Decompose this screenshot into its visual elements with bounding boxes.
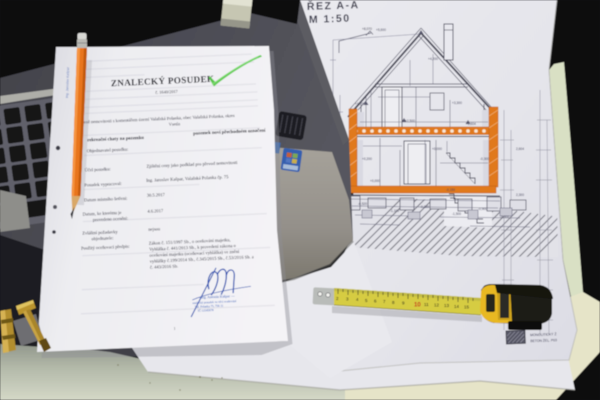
svg-text:-0,520: -0,520 [358, 202, 367, 206]
svg-text:+1,000: +1,000 [355, 102, 365, 106]
svg-text:13: 13 [444, 303, 450, 308]
svg-text:BETON ŽEL. P03: BETON ŽEL. P03 [530, 337, 557, 343]
svg-text:+2,500: +2,500 [405, 119, 415, 123]
svg-text:M 1:50: M 1:50 [309, 13, 351, 26]
svg-text:-1,300: -1,300 [500, 215, 509, 219]
svg-text:4.6.2017: 4.6.2017 [147, 208, 164, 214]
svg-text:č. 1640/2017: č. 1640/2017 [155, 89, 178, 95]
svg-text:IČ 12345678: IČ 12345678 [198, 307, 214, 313]
svg-text:+0,200: +0,200 [362, 157, 372, 161]
svg-text:objednatele:: objednatele: [92, 235, 114, 241]
svg-text:-1,100: -1,100 [390, 209, 399, 213]
svg-text:14: 14 [454, 304, 460, 309]
svg-text:-0,300: -0,300 [480, 157, 489, 161]
svg-text:1: 1 [173, 326, 175, 331]
svg-text:11: 11 [424, 302, 429, 307]
svg-text:+5,600: +5,600 [376, 28, 386, 32]
svg-text:+8,070: +8,070 [362, 27, 372, 31]
svg-text:-1,500: -1,500 [452, 212, 461, 216]
svg-text:12: 12 [434, 303, 440, 308]
svg-text:-0,900: -0,900 [478, 207, 487, 211]
svg-text:2,300: 2,300 [516, 193, 524, 197]
svg-text:MONOLITICKÝ Ž: MONOLITICKÝ Ž [530, 331, 557, 337]
svg-text:2,604: 2,604 [516, 147, 524, 151]
svg-text:30.5.2017: 30.5.2017 [147, 192, 166, 198]
svg-text:+3,300: +3,300 [452, 101, 462, 105]
svg-text:+0,000: +0,000 [370, 179, 380, 183]
svg-text:Vsetín: Vsetín [169, 121, 181, 127]
svg-text:15: 15 [464, 305, 470, 310]
svg-text:+0,000: +0,000 [432, 147, 442, 151]
svg-text:-0,320: -0,320 [420, 205, 429, 209]
svg-text:-0,150: -0,150 [446, 188, 455, 192]
svg-text:nejsou: nejsou [148, 226, 161, 232]
svg-text:10: 10 [414, 303, 421, 309]
svg-text:ŘEZ A-A: ŘEZ A-A [307, 0, 360, 13]
